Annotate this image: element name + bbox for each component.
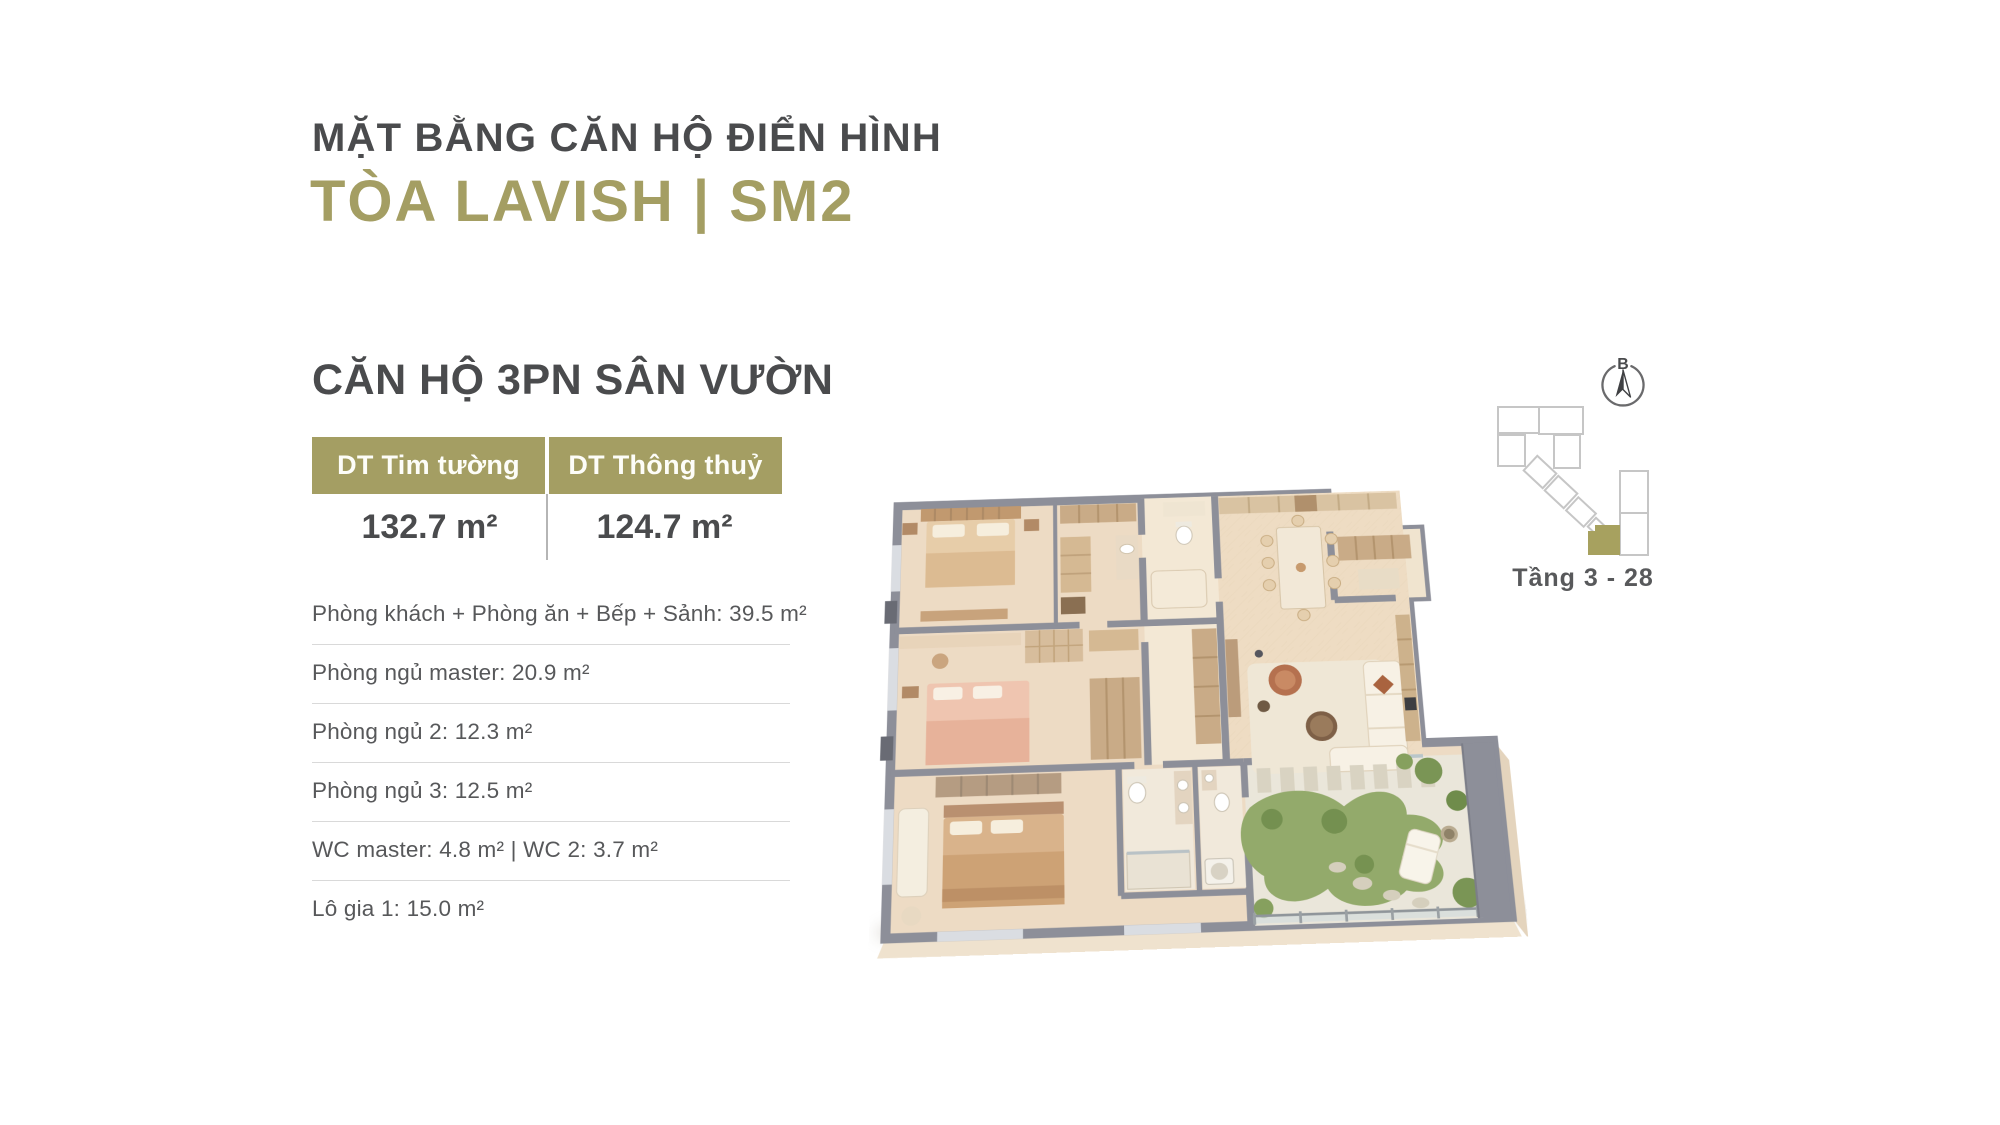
site-locator: B Tầng 3 - 28	[1488, 330, 1698, 602]
room-list-item: Phòng ngủ master: 20.9 m²	[312, 645, 790, 704]
room-list-item: Phòng ngủ 3: 12.5 m²	[312, 763, 790, 822]
area-value-thong-thuy: 124.7 m²	[547, 508, 782, 547]
area-col-thong-thuy-label: DT Thông thuỷ	[549, 437, 782, 494]
floor-plan-rendering	[868, 474, 1529, 959]
room-list: Phòng khách + Phòng ăn + Bếp + Sảnh: 39.…	[312, 586, 790, 939]
wc-2	[1198, 766, 1246, 889]
area-table: DT Tim tường DT Thông thuỷ 132.7 m² 124.…	[312, 437, 782, 560]
area-table-divider	[546, 494, 548, 560]
room-list-item: Phòng khách + Phòng ăn + Bếp + Sảnh: 39.…	[312, 586, 790, 645]
locator-caption: Tầng 3 - 28	[1488, 564, 1678, 593]
ac-ledge	[880, 736, 893, 760]
page-title: MẶT BẰNG CĂN HỘ ĐIỂN HÌNH	[312, 116, 942, 161]
floor-plan-svg	[868, 474, 1529, 959]
hallway-cabinet	[1192, 628, 1222, 744]
brochure-page: MẶT BẰNG CĂN HỘ ĐIỂN HÌNH TÒA LAVISH | S…	[0, 0, 2000, 1125]
ac-ledge	[884, 601, 897, 624]
area-col-tim-tuong-label: DT Tim tường	[312, 437, 545, 494]
unit-name: CĂN HỘ 3PN SÂN VƯỜN	[312, 356, 833, 405]
room-list-item: Phòng ngủ 2: 12.3 m²	[312, 704, 790, 763]
room-list-item: Lô gia 1: 15.0 m²	[312, 881, 790, 939]
area-value-tim-tuong: 132.7 m²	[312, 508, 547, 547]
building-title: TÒA LAVISH | SM2	[310, 168, 854, 235]
locator-floor-key	[1488, 395, 1678, 575]
room-list-item: WC master: 4.8 m² | WC 2: 3.7 m²	[312, 822, 790, 881]
wc-master	[1123, 768, 1195, 892]
area-table-header: DT Tim tường DT Thông thuỷ	[312, 437, 782, 494]
